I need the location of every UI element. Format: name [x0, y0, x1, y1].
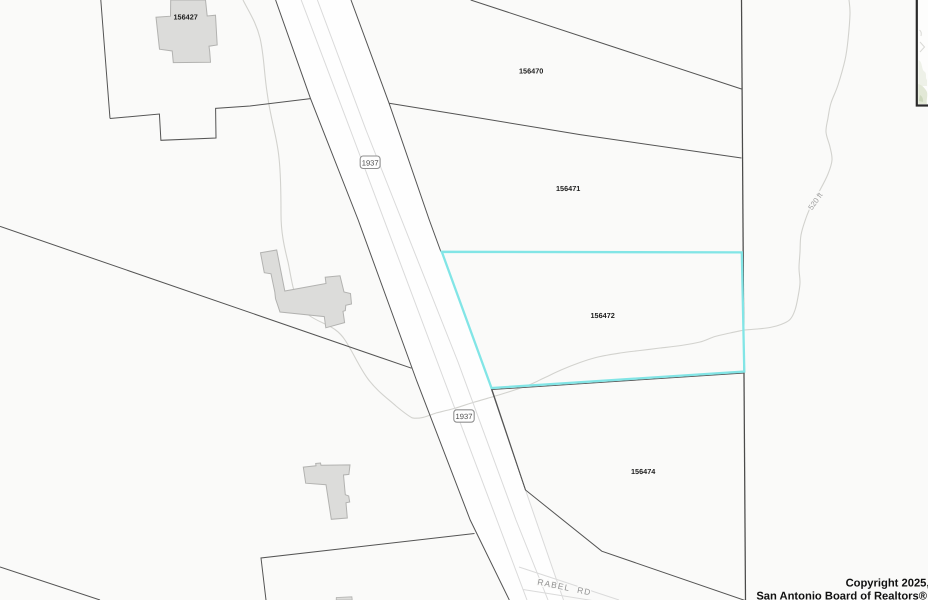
svg-text:1937: 1937	[362, 158, 379, 167]
svg-text:Copyright 2025,: Copyright 2025,	[846, 578, 928, 590]
svg-text:San Antonio Board of Realtors®: San Antonio Board of Realtors®	[756, 591, 927, 600]
svg-text:1937: 1937	[456, 412, 473, 421]
svg-text:156471: 156471	[556, 184, 580, 193]
svg-text:156427: 156427	[174, 13, 198, 22]
svg-text:156474: 156474	[631, 467, 656, 476]
svg-text:156470: 156470	[519, 67, 543, 76]
svg-text:156472: 156472	[591, 311, 615, 320]
